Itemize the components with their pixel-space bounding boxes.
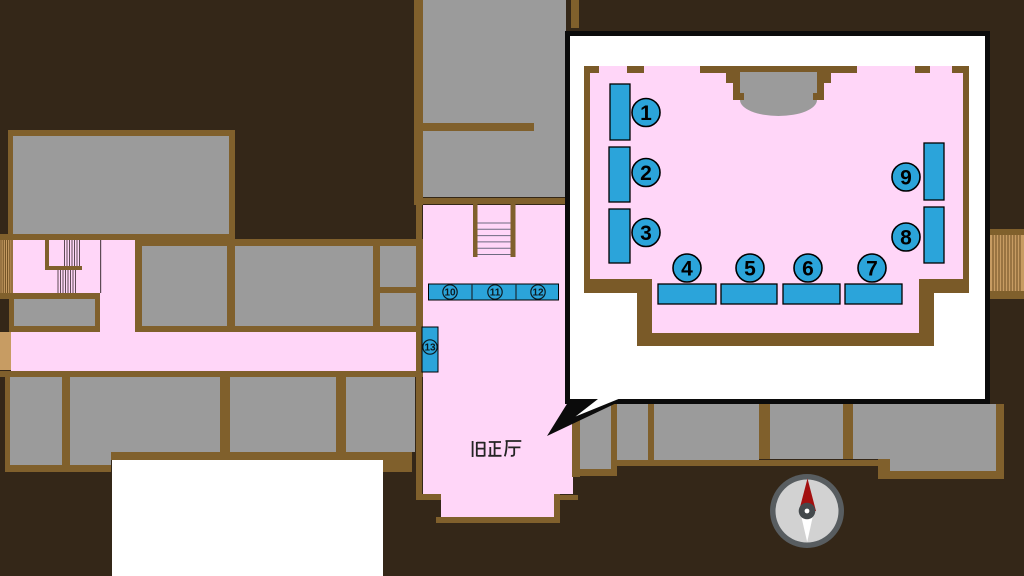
svg-text:1: 1 [640,102,652,125]
svg-text:3: 3 [640,222,652,245]
svg-text:4: 4 [681,258,693,281]
svg-text:2: 2 [640,162,652,185]
svg-text:7: 7 [866,258,878,281]
svg-text:8: 8 [900,227,912,250]
svg-text:5: 5 [744,258,756,281]
svg-text:11: 11 [490,288,501,299]
svg-text:10: 10 [444,288,456,299]
svg-text:6: 6 [802,258,814,281]
svg-text:12: 12 [532,288,544,299]
svg-text:9: 9 [900,167,912,190]
svg-text:13: 13 [424,343,436,354]
